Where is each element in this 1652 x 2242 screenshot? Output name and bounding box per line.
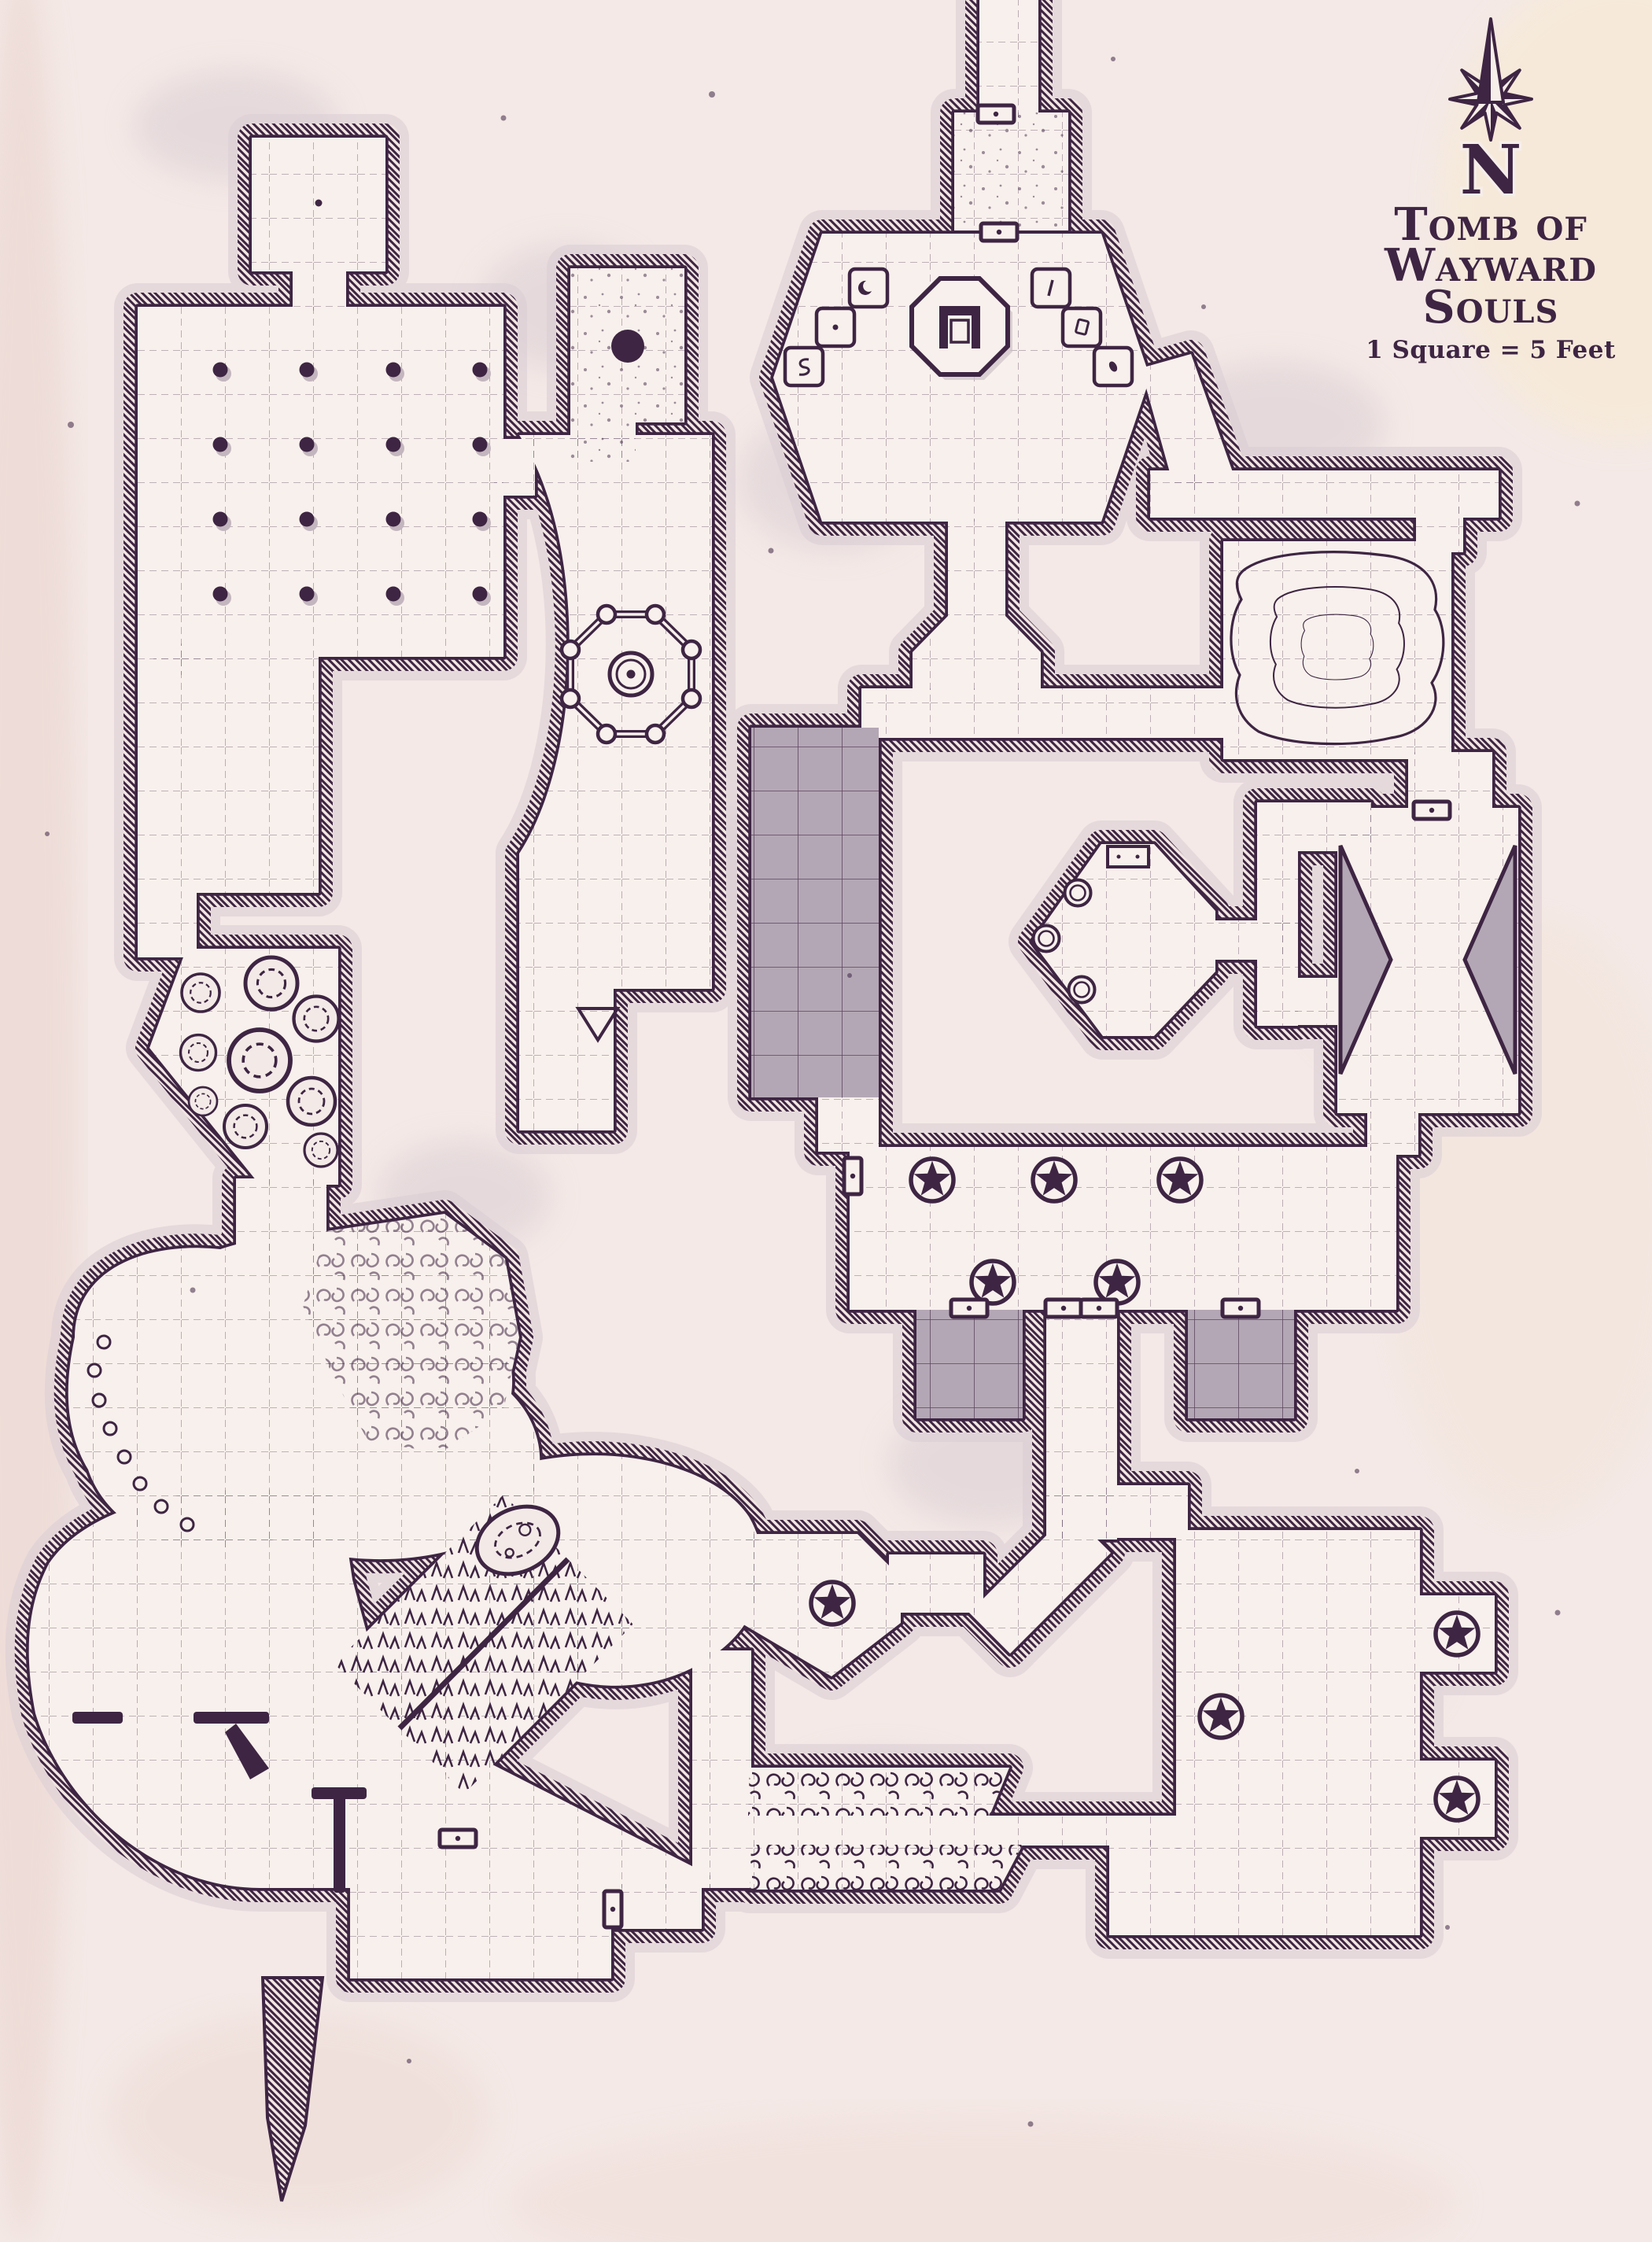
pit	[611, 330, 644, 363]
floor-marker-dot	[315, 200, 323, 207]
door	[1414, 802, 1450, 819]
map-title-line2: Wayward Souls	[1337, 245, 1644, 328]
star-sigil	[911, 1159, 953, 1201]
bramble-pit	[748, 1768, 1009, 1816]
door	[440, 1830, 476, 1847]
star-sigil	[1200, 1695, 1242, 1738]
scale-note: 1 Square = 5 Feet	[1337, 336, 1644, 364]
star-sigil	[1159, 1159, 1201, 1201]
door	[1045, 1300, 1082, 1317]
star-sigil	[1436, 1613, 1478, 1655]
door	[604, 1891, 621, 1927]
dungeon-map-page: N Tomb of Wayward Souls 1 Square = 5 Fee…	[0, 0, 1652, 2242]
compass-star	[1450, 19, 1532, 140]
star-sigil	[972, 1261, 1014, 1304]
compass-rose: N	[1396, 14, 1585, 203]
star-sigil	[811, 1582, 854, 1624]
door	[1081, 1300, 1117, 1317]
door	[981, 223, 1017, 241]
door	[1222, 1300, 1259, 1317]
compass-north-letter: N	[1460, 131, 1522, 203]
star-sigil	[1436, 1778, 1478, 1820]
star-sigil	[1096, 1261, 1138, 1304]
door	[951, 1300, 987, 1317]
door	[978, 105, 1014, 123]
door	[844, 1158, 861, 1194]
star-sigil	[1033, 1159, 1075, 1201]
bramble-pit	[750, 1845, 1023, 1890]
map-legend: N Tomb of Wayward Souls 1 Square = 5 Fee…	[1337, 14, 1644, 364]
map-title: Tomb of Wayward Souls	[1337, 205, 1644, 328]
